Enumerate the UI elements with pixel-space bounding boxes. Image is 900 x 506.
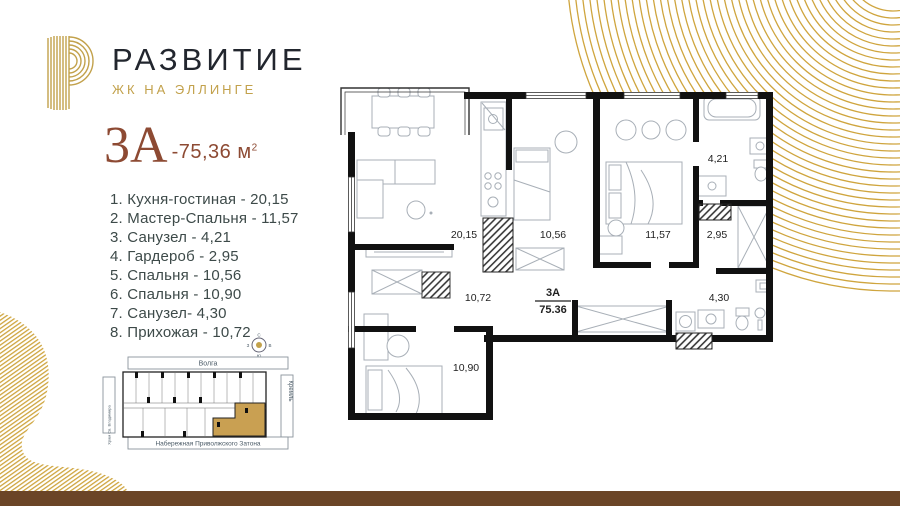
label-wardrobe: 2,95 [707,229,728,241]
room-list-item: 1. Кухня-гостиная - 20,15 [110,190,299,209]
street-right-label: Кремль [287,381,293,402]
label-bedroom1: 10,56 [540,229,566,241]
plan-total-area: 75.36 [539,304,567,316]
entrance-door [676,333,712,349]
brand-subtitle: ЖК НА ЭЛЛИНГЕ [112,82,307,97]
street-top-label: Волга [199,361,218,368]
room-list-item: 6. Спальня - 10,90 [110,285,299,304]
floor-plan: 20,15 10,56 11,57 4,21 2,95 4,30 10,72 1… [336,80,776,426]
bottom-accent-bar [0,491,900,506]
label-bedroom2: 10,90 [453,362,479,374]
brand-header: РАЗВИТИЕ ЖК НА ЭЛЛИНГЕ [46,32,307,110]
brand-title: РАЗВИТИЕ [112,44,307,75]
label-hall: 10,72 [465,292,491,304]
label-bath2: 4,30 [709,292,730,304]
building-footprint [123,372,266,437]
brand-logo-icon [46,32,100,110]
room-list-item: 3. Санузел - 4,21 [110,228,299,247]
room-list: 1. Кухня-гостиная - 20,15 2. Мастер-Спал… [110,190,299,342]
room-list-item: 8. Прихожая - 10,72 [110,323,299,342]
room-list-item: 7. Санузел- 4,30 [110,304,299,323]
apartment-unit: 3А [104,120,168,172]
room-list-item: 2. Мастер-Спальня - 11,57 [110,209,299,228]
label-kitchen-living: 20,15 [451,229,477,241]
street-left-label: Храм Св. Владимира [107,405,112,445]
label-master: 11,57 [645,229,671,241]
flyer-page: РАЗВИТИЕ ЖК НА ЭЛЛИНГЕ 3А -75,36 м2 1. К… [0,0,900,506]
room-list-item: 5. Спальня - 10,56 [110,266,299,285]
svg-text:З: З [247,343,250,348]
site-map: С В Ю З Волга Храм Св. Владимира Кремль … [95,330,300,460]
label-bath1: 4,21 [708,153,729,165]
svg-text:В: В [268,343,271,348]
apartment-area: -75,36 м2 [172,141,258,172]
street-bottom-label: Набережная Приволжского Затона [155,440,260,448]
apartment-heading: 3А -75,36 м2 [104,120,258,172]
plan-unit-number: 3А [546,287,560,299]
room-list-item: 4. Гардероб - 2,95 [110,247,299,266]
